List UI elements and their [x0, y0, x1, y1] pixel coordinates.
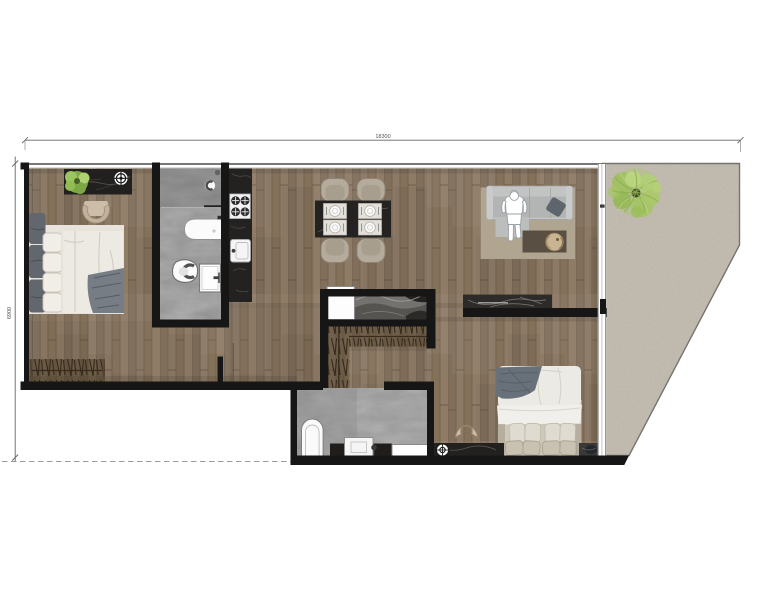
svg-text:18300: 18300 — [375, 134, 390, 140]
svg-text:6900: 6900 — [7, 307, 13, 319]
